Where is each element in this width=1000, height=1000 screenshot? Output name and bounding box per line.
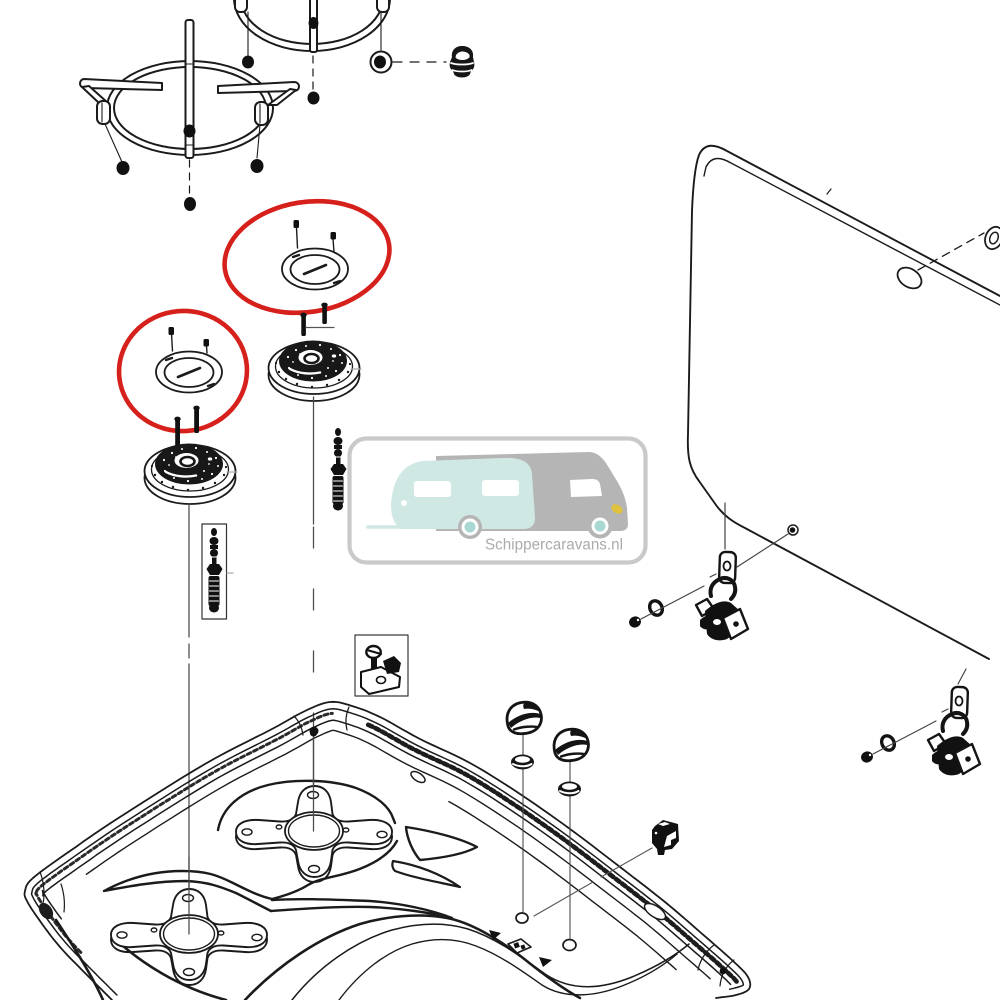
svg-text:Schippercaravans.nl: Schippercaravans.nl [485, 537, 623, 554]
